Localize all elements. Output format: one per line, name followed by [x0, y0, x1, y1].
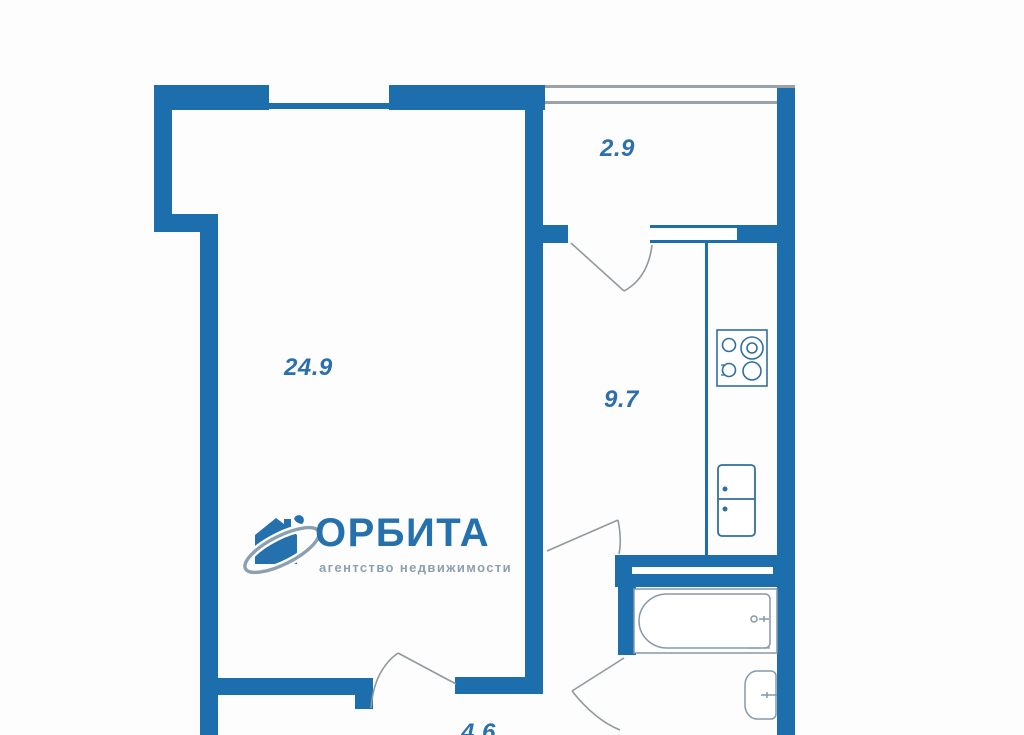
living-room-door-arc	[371, 653, 456, 708]
bathtub-icon	[633, 588, 778, 654]
floor-plan: 24.9 2.9 9.7 4.6 ОРБИТА агентство недвиж…	[0, 0, 1024, 735]
bathroom-door-arc	[572, 658, 624, 730]
fridge-icon	[716, 463, 757, 538]
logo-title: ОРБИТА	[315, 513, 490, 553]
balcony-area-label: 2.9	[600, 137, 635, 161]
toilet-icon	[743, 668, 778, 722]
balcony-door-arc	[571, 243, 652, 291]
logo-subtitle: агентство недвижимости	[319, 561, 512, 574]
kitchen-door-arc	[547, 520, 620, 554]
hallway-area-label: 4.6	[461, 721, 496, 735]
living-room-area-label: 24.9	[284, 356, 333, 380]
stove-icon	[716, 329, 768, 387]
logo-orbit-tip	[294, 515, 304, 524]
kitchen-area-label: 9.7	[604, 388, 639, 412]
door-swings-layer	[0, 0, 1024, 735]
